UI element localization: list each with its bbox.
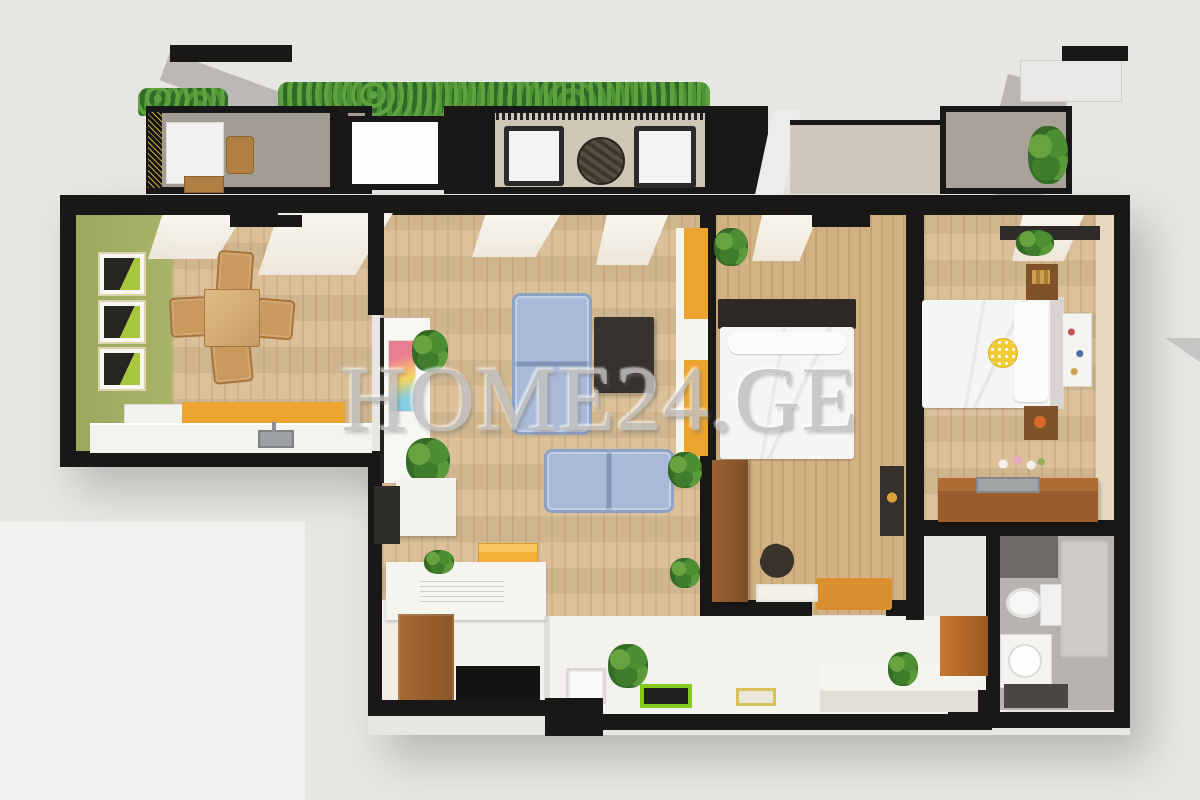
entry-step — [545, 698, 603, 736]
kitchen-sink — [258, 430, 294, 448]
vanity-sink — [976, 477, 1040, 493]
divider-tv-inset — [374, 486, 400, 544]
nightstand-books — [1032, 270, 1050, 284]
bedroom1-headboard — [718, 299, 856, 329]
terrace-window — [346, 116, 444, 190]
polka-dot-pillow — [988, 338, 1018, 368]
bathroom-bottom-wall — [986, 712, 1130, 728]
bedroom2-wall-face — [1096, 215, 1114, 520]
outdoor-armchair-right — [634, 126, 696, 188]
floor-plan-render: HOME24.GE — [0, 0, 1200, 800]
wall-bedroom2-bottom — [920, 520, 1116, 536]
hall-orange-wardrobe — [940, 616, 988, 676]
terrace-plant-right — [1028, 126, 1068, 184]
kitchen-right-wall — [368, 195, 384, 315]
rooftop-cap-right — [1062, 46, 1128, 61]
left-wall — [60, 195, 76, 467]
sofa-vertical — [512, 293, 592, 435]
divider-plant-top — [412, 330, 448, 372]
hall-plant-1 — [608, 644, 648, 688]
vanity-flowers — [992, 452, 1048, 476]
outdoor-coffee-table — [577, 137, 625, 185]
outdoor-stool — [184, 176, 224, 193]
dining-chair-right — [254, 297, 295, 340]
wall-art-frame-3 — [98, 347, 146, 391]
dining-chair-left — [169, 296, 209, 338]
yellow-wardrobe — [676, 228, 708, 456]
living-plant-right — [668, 452, 702, 488]
hall-bottom-wall-left — [368, 700, 554, 716]
hall-plant-2 — [888, 652, 918, 686]
hall-picture-yellow — [736, 688, 776, 706]
chimney-cap-left — [170, 45, 292, 62]
bedroom2-pillows — [1014, 302, 1048, 402]
toilet-tank — [1040, 584, 1062, 626]
bedroom1-plant — [714, 228, 748, 266]
kitchen-bottom-wall — [60, 451, 380, 467]
bedroom1-pillow — [728, 332, 846, 354]
terrace-mesh-railing-left — [148, 112, 162, 188]
bathroom-dark-wall — [1000, 536, 1058, 578]
terrace-wall-mid-a — [330, 106, 348, 194]
shower-panel — [1058, 540, 1108, 658]
divider-shelf-box — [396, 478, 456, 536]
hall-picture-green — [640, 684, 692, 708]
right-wall — [1114, 195, 1130, 728]
nightstand-knob — [1034, 416, 1046, 428]
sofa-horizontal — [544, 449, 674, 513]
terrace-railing-zigzag — [496, 113, 704, 120]
top-wall — [60, 195, 1130, 215]
next-image-arrow[interactable] — [1165, 338, 1200, 362]
outdoor-table — [166, 122, 224, 184]
bedroom2-plant — [1016, 230, 1054, 256]
kitchen-faucet — [272, 422, 276, 432]
bedroom1-papers — [756, 584, 818, 602]
bedroom1-bottom-wall-a — [700, 600, 812, 616]
bedroom1-rug — [816, 578, 892, 610]
desk-plant — [424, 550, 454, 574]
bedroom1-wardrobe — [712, 460, 748, 602]
dining-table — [204, 289, 260, 347]
hall-bottom-wall-right — [600, 714, 992, 730]
wall-bedroom1-bedroom2 — [906, 215, 924, 620]
background-light-block — [0, 522, 305, 800]
dining-chair-top — [216, 250, 255, 294]
toilet-bowl — [1006, 588, 1042, 618]
counter-backsplash — [182, 402, 345, 424]
wall-art-frame-1 — [98, 252, 146, 296]
outdoor-chair — [226, 136, 254, 174]
washbasin — [1008, 644, 1042, 678]
media-panel — [594, 317, 654, 393]
terrace-right-floor — [790, 120, 940, 194]
wall-art-frame-2 — [98, 300, 146, 344]
outdoor-armchair-left — [504, 126, 564, 186]
top-wall-stub-2 — [812, 215, 870, 227]
bath-floor-mat — [1004, 684, 1068, 708]
rooftop-block-right — [1020, 60, 1122, 102]
hall-wood-cabinet — [398, 614, 454, 702]
top-wall-stub-1 — [230, 215, 302, 227]
kitchen-counter — [90, 423, 372, 453]
terrace-wall-mid-b — [444, 106, 490, 194]
bedroom2-dresser — [1062, 313, 1092, 387]
desk-sketch — [420, 580, 504, 602]
living-plant-lower — [670, 558, 700, 588]
bedroom1-wall-picture — [880, 466, 904, 536]
